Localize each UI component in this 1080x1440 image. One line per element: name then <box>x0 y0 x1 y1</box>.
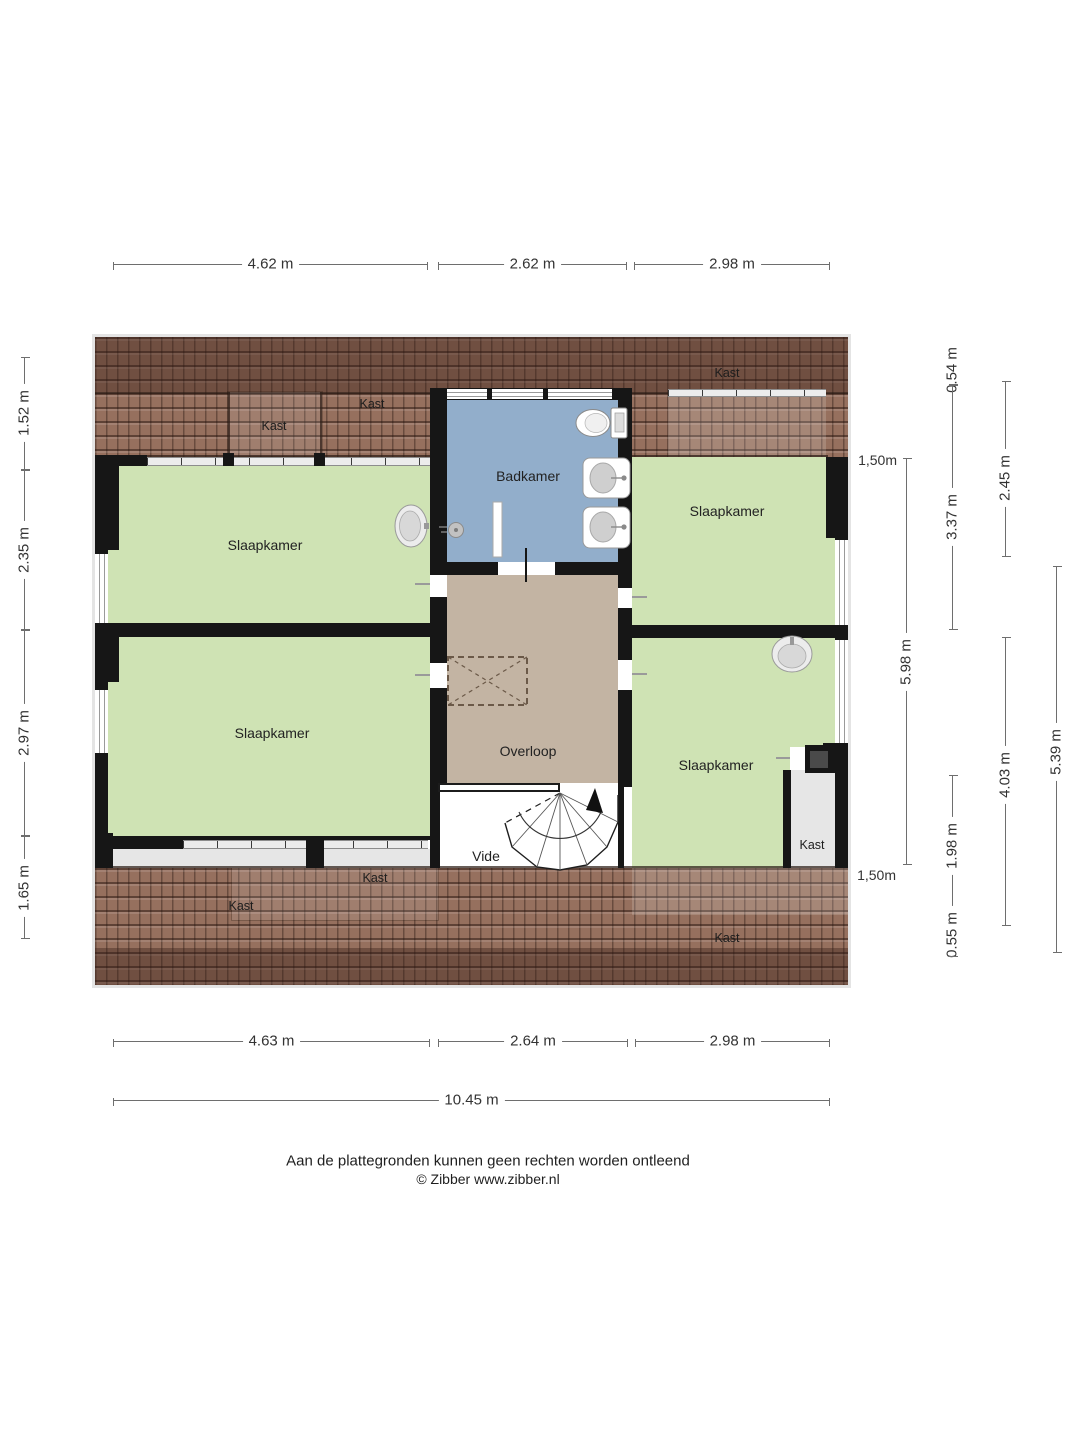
bedroom-br-basin <box>772 636 812 672</box>
bathroom-sink-2 <box>583 507 630 548</box>
dim-left-3: 2.97 m <box>24 630 25 836</box>
shower-head <box>439 523 464 538</box>
room-label-kast-roof-bl-1: Kast <box>228 899 253 913</box>
dim-bottom-3: 2.98 m <box>635 1041 830 1042</box>
dim-right-539: 5.39 m <box>1056 566 1057 953</box>
footer-credit: © Zibber www.zibber.nl <box>416 1171 559 1187</box>
room-label-kast-roof-tl: Kast <box>359 397 384 411</box>
dim-left-3-label: 2.97 m <box>15 704 34 762</box>
room-label-kast-roof-tr: Kast <box>714 366 739 380</box>
dim-left-2: 2.35 m <box>24 470 25 630</box>
dim-right-598-label: 5.98 m <box>897 633 916 691</box>
dim-top-3: 2.98 m <box>634 264 830 265</box>
room-label-bedroom-bottom-left: Slaapkamer <box>235 725 310 741</box>
dim-top-2-label: 2.62 m <box>504 256 562 273</box>
room-label-void: Vide <box>472 848 500 864</box>
room-label-landing: Overloop <box>500 743 557 759</box>
dim-right-403: 4.03 m <box>1005 637 1006 926</box>
room-label-bedroom-top-left: Slaapkamer <box>228 537 303 553</box>
dim-top-1: 4.62 m <box>113 264 428 265</box>
skylight <box>448 657 527 705</box>
dim-left-4: 1.65 m <box>24 836 25 939</box>
room-label-bedroom-top-right: Slaapkamer <box>690 503 765 519</box>
dim-right-198-label: 1.98 m <box>943 817 962 875</box>
room-label-bedroom-bottom-right: Slaapkamer <box>679 757 754 773</box>
dim-bottom-1-label: 4.63 m <box>243 1033 301 1050</box>
dim-top-2: 2.62 m <box>438 264 627 265</box>
dim-right-055-label: 0.55 m <box>943 906 962 964</box>
dim-bottom-total-label: 10.45 m <box>438 1092 504 1109</box>
dim-right-245: 2.45 m <box>1005 381 1006 557</box>
dim-bottom-1: 4.63 m <box>113 1041 430 1042</box>
floorplan-page: Slaapkamer Slaapkamer Slaapkamer Slaapka… <box>0 0 1080 1440</box>
dim-left-1-label: 1.52 m <box>15 384 34 442</box>
room-label-kast-closet-br: Kast <box>799 838 824 852</box>
dim-left-4-label: 1.65 m <box>15 859 34 917</box>
room-label-kast-box-tl: Kast <box>261 419 286 433</box>
dim-bottom-2: 2.64 m <box>438 1041 628 1042</box>
fixtures-layer <box>95 337 848 985</box>
dim-right-245-label: 2.45 m <box>996 449 1015 507</box>
dim-top-1-label: 4.62 m <box>242 256 300 273</box>
room-label-bathroom: Badkamer <box>496 468 560 484</box>
bathroom-sink-1 <box>583 458 630 498</box>
dim-bottom-3-label: 2.98 m <box>704 1033 762 1050</box>
dim-right-403-label: 4.03 m <box>996 746 1015 804</box>
dim-right-539-label: 5.39 m <box>1047 723 1066 781</box>
dim-left-2-label: 2.35 m <box>15 521 34 579</box>
dim-right-054: 0.54 m <box>952 345 953 385</box>
stairs <box>505 788 618 870</box>
floorplan: Slaapkamer Slaapkamer Slaapkamer Slaapka… <box>95 337 848 985</box>
marker-150-bottom: 1,50m <box>857 867 896 883</box>
bedroom-tl-basin <box>395 505 429 547</box>
marker-150-top: 1,50m <box>858 452 897 468</box>
room-label-kast-roof-bl-2: Kast <box>362 871 387 885</box>
room-label-kast-roof-br: Kast <box>714 931 739 945</box>
footer-disclaimer: Aan de plattegronden kunnen geen rechten… <box>286 1153 690 1170</box>
dim-right-598: 5.98 m <box>906 458 907 865</box>
dim-bottom-total: 10.45 m <box>113 1100 830 1101</box>
dim-right-055: 0.55 m <box>952 917 953 957</box>
dim-right-337: 3.37 m <box>952 385 953 630</box>
dim-top-3-label: 2.98 m <box>703 256 761 273</box>
dim-right-198: 1.98 m <box>952 775 953 917</box>
dim-left-1: 1.52 m <box>24 357 25 470</box>
dim-bottom-2-label: 2.64 m <box>504 1033 562 1050</box>
toilet <box>576 408 627 438</box>
dim-right-337-label: 3.37 m <box>943 488 962 546</box>
shower-partition <box>493 502 502 557</box>
